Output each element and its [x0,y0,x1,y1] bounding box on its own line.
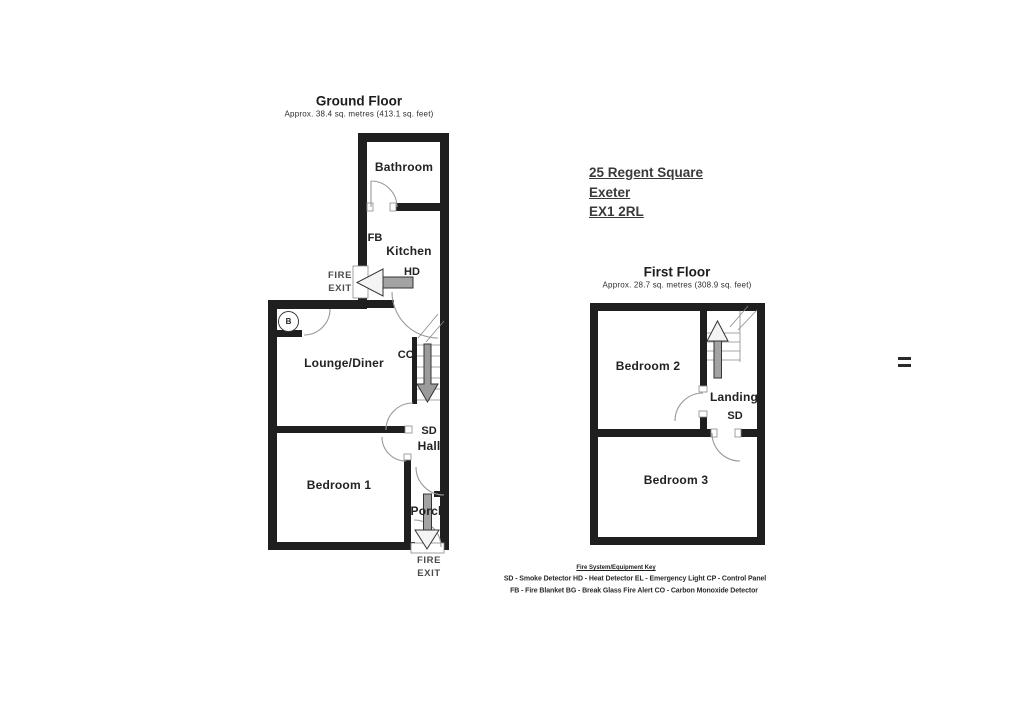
room-label-bedroom1: Bedroom 1 [307,478,371,492]
floorplan-drawing [0,0,1024,724]
equipment-label-sd-ground: SD [421,425,436,437]
room-label-bedroom3: Bedroom 3 [644,473,708,487]
equipment-label-fb: FB [368,232,383,244]
first-floor-walls [590,303,765,545]
fire-key-line1: SD - Smoke Detector HD - Heat Detector E… [504,576,766,583]
boiler-marker: B [278,311,299,332]
address-line3: EX1 2RL [589,202,703,221]
address-line2: Exeter [589,183,703,202]
room-label-hall: Hall [418,439,441,453]
room-label-bathroom: Bathroom [375,160,433,174]
floorplan-page: Ground Floor Approx. 38.4 sq. metres (41… [0,0,1024,724]
stairs-down-arrow [417,344,438,402]
room-label-landing: Landing [710,390,758,404]
room-label-kitchen: Kitchen [386,244,431,258]
fire-exit-bottom-label: FIRE EXIT [417,554,441,580]
fire-exit-bottom-line1: FIRE [417,554,441,567]
first-floor-subtitle: Approx. 28.7 sq. metres (308.9 sq. feet) [603,281,752,290]
boiler-label: B [286,317,292,326]
equipment-label-sd-first: SD [727,410,742,422]
scan-artifact-marks [898,357,911,367]
fire-exit-side-line2: EXIT [328,282,352,295]
room-label-porch: Porch [410,504,445,518]
property-address: 25 Regent Square Exeter EX1 2RL [589,163,703,222]
fire-key-line2: FB - Fire Blanket BG - Break Glass Fire … [510,588,758,595]
first-floor-title: First Floor [644,265,711,280]
ground-floor-title: Ground Floor [316,94,402,109]
equipment-label-co: CO [398,349,415,361]
equipment-label-hd: HD [404,266,420,278]
fire-key-title: Fire System/Equipment Key [576,565,655,571]
room-label-bedroom2: Bedroom 2 [616,359,680,373]
ground-floor-subtitle: Approx. 38.4 sq. metres (413.1 sq. feet) [285,110,434,119]
fire-exit-bottom-line2: EXIT [417,567,441,580]
fire-exit-side-label: FIRE EXIT [328,269,352,295]
room-label-lounge-diner: Lounge/Diner [304,356,384,370]
porch-exit-arrow [415,494,439,549]
stairs-up-arrow [707,321,728,378]
fire-exit-side-line1: FIRE [328,269,352,282]
address-line1: 25 Regent Square [589,163,703,182]
